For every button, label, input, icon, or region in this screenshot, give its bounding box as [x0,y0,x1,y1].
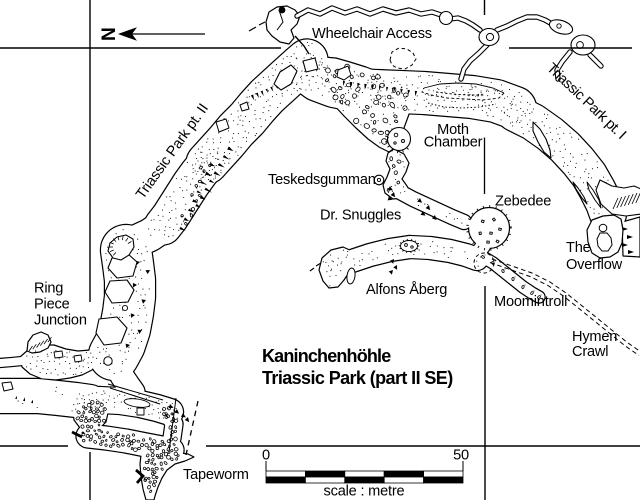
svg-text:The: The [566,240,591,256]
svg-text:Moomintroll: Moomintroll [494,294,567,310]
svg-text:Overflow: Overflow [566,257,623,273]
svg-text:50: 50 [453,448,469,464]
svg-text:Tapeworm: Tapeworm [183,467,249,483]
svg-text:Zebedee: Zebedee [495,194,551,210]
svg-text:Kaninchenhöhle: Kaninchenhöhle [262,346,391,366]
svg-text:Teskedsgumman: Teskedsgumman [268,172,376,188]
svg-text:Junction: Junction [34,313,87,329]
svg-text:Hymen: Hymen [572,329,617,345]
svg-text:Triassic Park (part II SE): Triassic Park (part II SE) [262,368,453,388]
svg-text:Crawl: Crawl [572,344,608,360]
svg-text:0: 0 [262,448,270,464]
svg-text:N: N [97,27,118,41]
svg-text:Piece: Piece [34,297,70,313]
svg-text:Chamber: Chamber [424,135,483,151]
svg-text:Wheelchair Access: Wheelchair Access [312,26,432,42]
svg-text:scale : metre: scale : metre [324,484,405,500]
svg-text:Alfons Åberg: Alfons Åberg [366,281,447,298]
svg-text:Ring: Ring [34,281,63,297]
svg-text:Dr. Snuggles: Dr. Snuggles [320,208,401,224]
